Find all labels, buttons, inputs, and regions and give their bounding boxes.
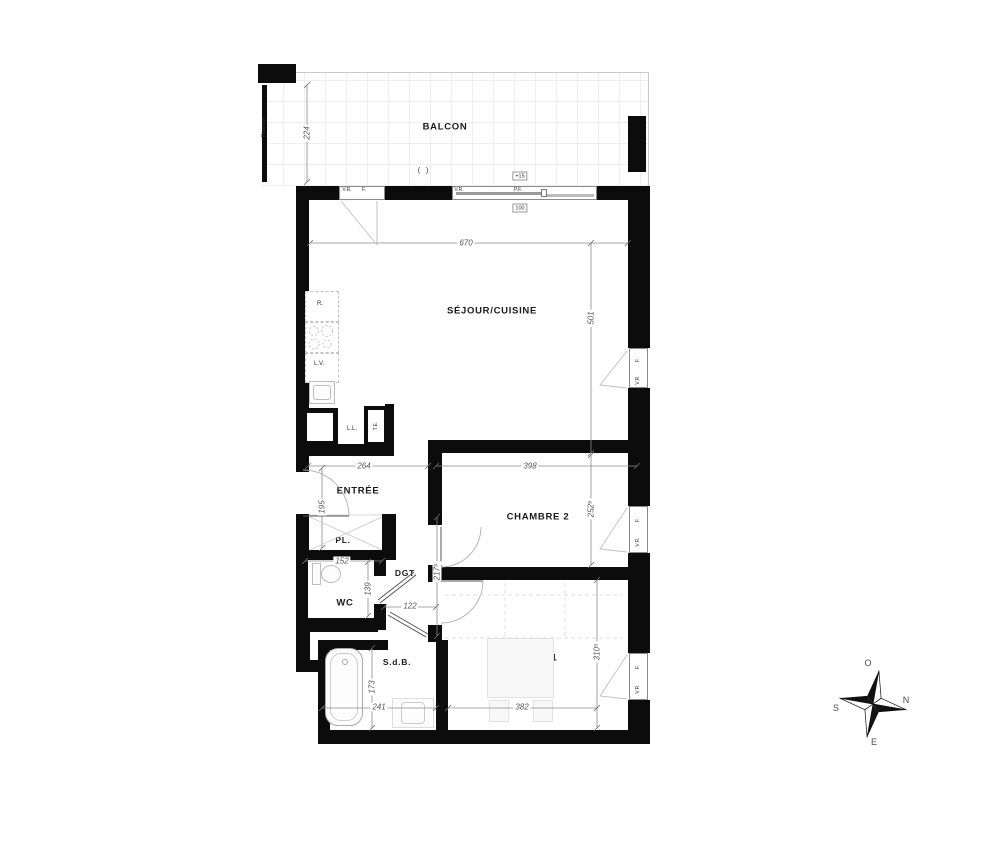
door-leaves [303,516,483,637]
dim-placard-width: 152 [333,557,350,566]
door-arcs [303,470,483,623]
dim-entree-width: 264 [355,462,372,471]
compass-east: E [871,737,877,747]
plan-linework [0,0,1000,857]
dim-chambre1-height: 310⁵ [593,642,602,663]
cooktop-burners [309,326,333,350]
dim-chambre1-width: 382 [513,703,530,712]
furniture-dashed-lines [445,583,623,638]
dim-chambre2-height: 252⁵ [587,499,596,520]
dimension-lines [305,85,637,728]
dim-sdb-height: 173 [368,678,377,695]
compass-north: N [903,695,910,705]
dim-chambre2-width: 398 [521,462,538,471]
dim-sejour-width: 670 [457,239,474,248]
compass-west: O [864,658,871,668]
dim-balcon-depth: 224 [303,124,312,141]
dim-wc-height: 139 [364,580,373,597]
dim-entree-height: 195 [318,498,327,515]
compass-south: S [833,703,839,713]
floor-plan: Pare-vue BALCON ( ) +15 V.R. F. V.R. P.F… [0,0,1000,857]
dim-sejour-height: 501 [587,309,596,326]
closet-cross-lines [310,515,382,550]
window-swings [341,201,627,699]
dim-sdb-width: 241 [370,703,387,712]
dimension-ticks [302,82,640,731]
dim-degagement-width: 122 [401,602,418,611]
dim-degagement-height: 217⁵ [433,562,442,583]
compass-rose [834,665,913,744]
